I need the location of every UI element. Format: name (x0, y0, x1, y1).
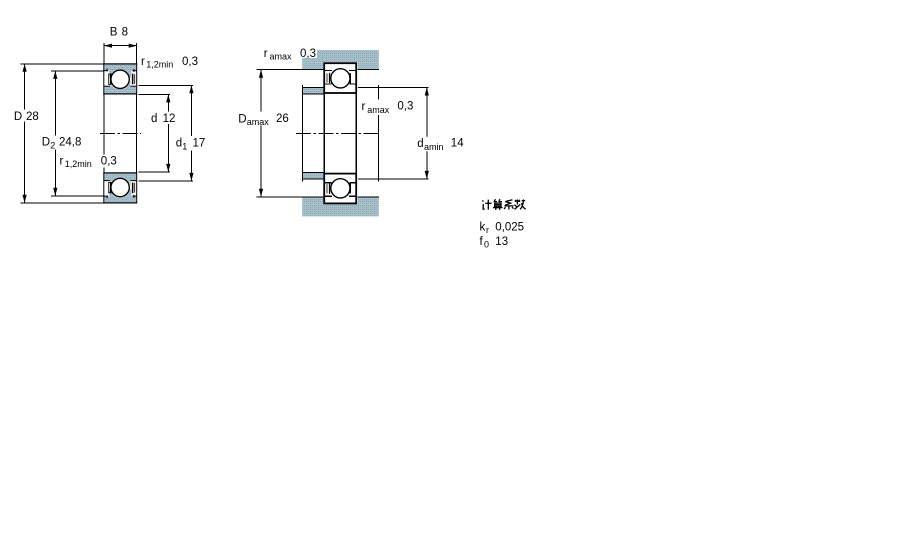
svg-text:1: 1 (182, 141, 187, 151)
svg-text:d: d (176, 138, 182, 150)
svg-text:13: 13 (495, 236, 508, 248)
svg-text:2: 2 (50, 140, 55, 150)
svg-text:8: 8 (122, 27, 128, 39)
svg-text:B: B (110, 27, 118, 39)
svg-text:k: k (480, 222, 486, 234)
svg-text:r: r (60, 156, 64, 168)
svg-text:amax: amax (367, 105, 390, 115)
svg-text:1,2min: 1,2min (146, 60, 173, 70)
svg-text:0: 0 (484, 240, 489, 250)
svg-text:24,8: 24,8 (59, 137, 81, 149)
svg-text:amin: amin (424, 142, 444, 152)
svg-text:d: d (417, 138, 423, 150)
svg-text:14: 14 (451, 137, 464, 149)
svg-text:0,3: 0,3 (101, 156, 117, 168)
svg-text:D: D (14, 111, 22, 123)
svg-text:amax: amax (247, 117, 270, 127)
svg-text:0,3: 0,3 (182, 56, 198, 68)
svg-text:r: r (264, 48, 268, 60)
svg-text:0,3: 0,3 (397, 101, 413, 113)
svg-text:26: 26 (276, 113, 289, 125)
svg-text:d: d (151, 113, 157, 125)
svg-text:0,025: 0,025 (495, 222, 524, 234)
svg-text:amax: amax (270, 52, 293, 62)
svg-text:28: 28 (26, 111, 39, 123)
svg-text:r: r (486, 225, 489, 235)
svg-text:D: D (238, 113, 246, 125)
svg-text:r: r (141, 56, 145, 68)
svg-text:D: D (42, 137, 50, 149)
svg-text:r: r (362, 101, 366, 113)
svg-text:f: f (480, 236, 484, 248)
svg-text:1,2min: 1,2min (65, 159, 92, 169)
svg-text:0,3: 0,3 (300, 48, 316, 60)
svg-text:12: 12 (163, 113, 176, 125)
svg-text:17: 17 (193, 138, 206, 150)
